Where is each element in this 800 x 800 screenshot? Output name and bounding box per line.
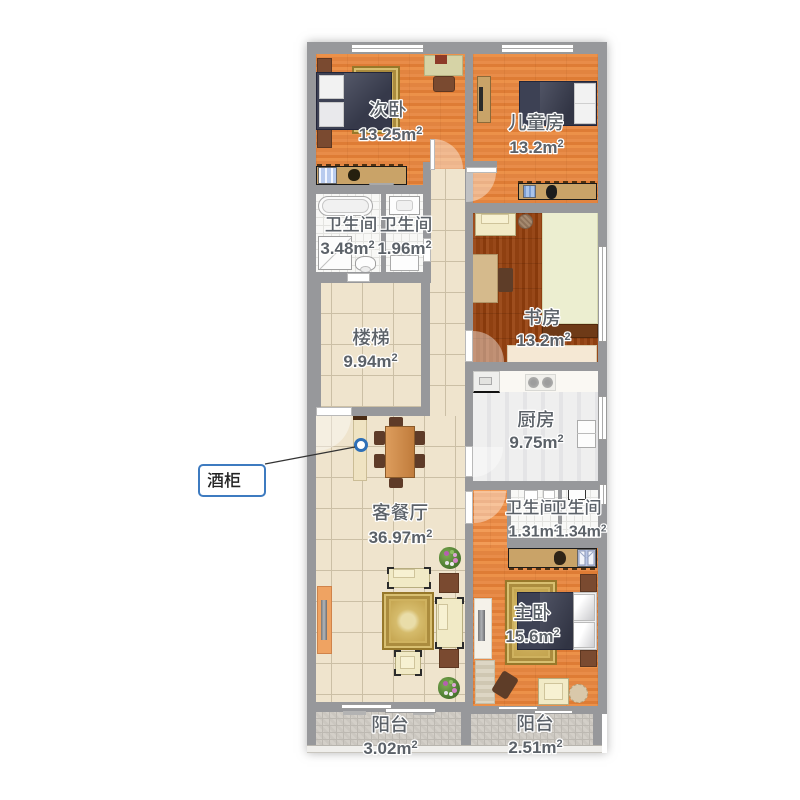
svg-text:3.48m2: 3.48m2: [320, 239, 374, 258]
svg-text:13.2m2: 13.2m2: [509, 138, 563, 157]
svg-text:9.75m2: 9.75m2: [509, 433, 563, 452]
svg-text:1.34m2: 1.34m2: [556, 524, 607, 541]
svg-text:9.94m2: 9.94m2: [343, 352, 397, 371]
svg-text:13.2m2: 13.2m2: [516, 331, 570, 350]
svg-text:15.6m2: 15.6m2: [505, 627, 559, 646]
svg-text:13.25m2: 13.25m2: [359, 125, 423, 144]
svg-text:36.97m2: 36.97m2: [369, 528, 433, 547]
svg-text:2.51m2: 2.51m2: [508, 738, 562, 757]
svg-text:1.96m2: 1.96m2: [377, 239, 431, 258]
svg-text:3.02m2: 3.02m2: [363, 739, 417, 758]
